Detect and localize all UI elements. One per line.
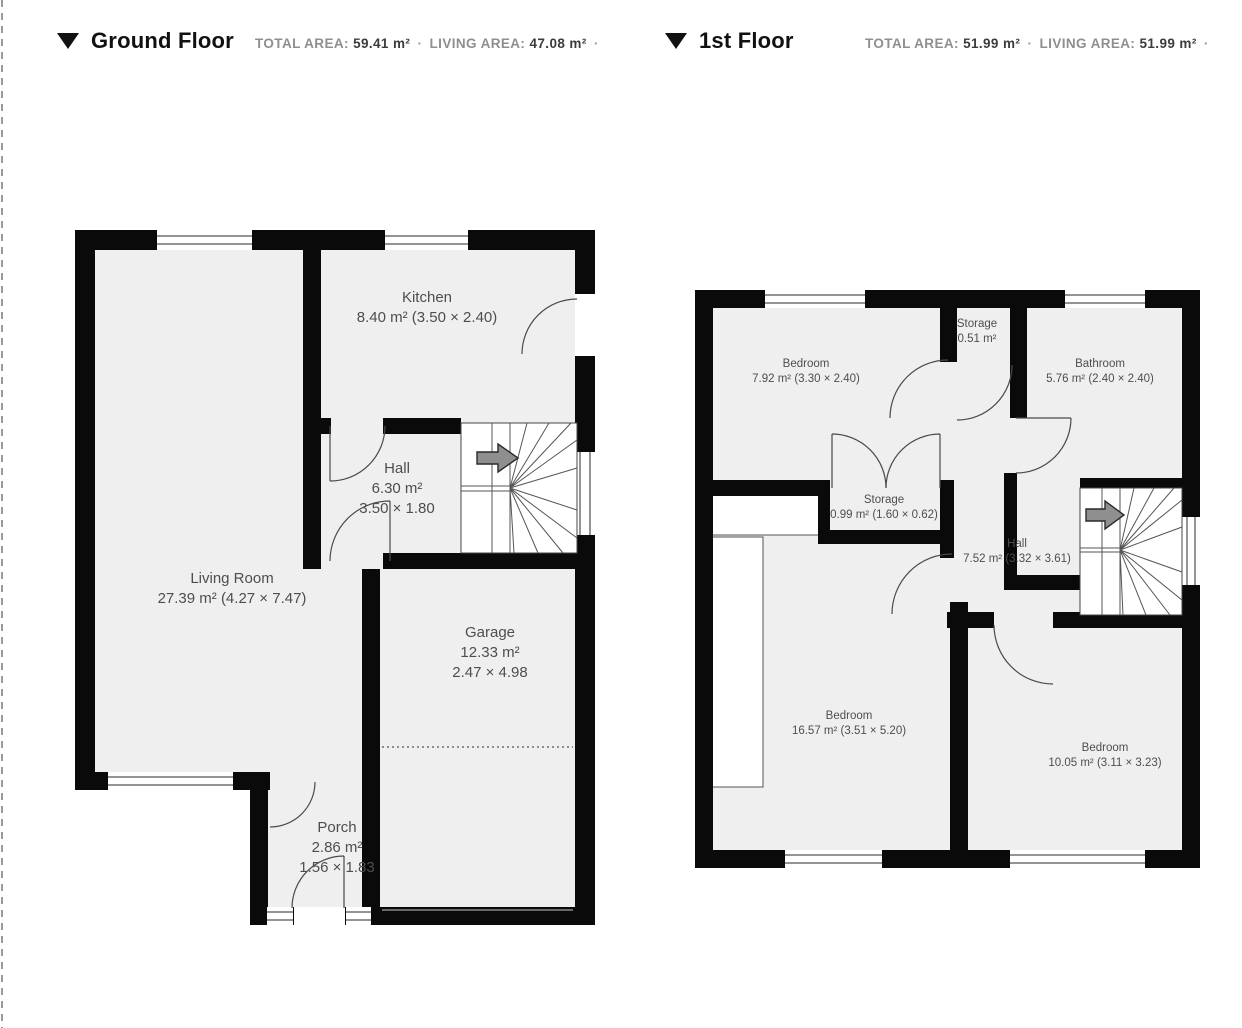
ground-floor-stats: TOTAL AREA: 59.41 m² · LIVING AREA: 47.0… — [255, 36, 602, 51]
room-label-storage-mid: Storage 0.99 m² (1.60 × 0.62) — [830, 493, 938, 523]
room-label-hall-ground: Hall 6.30 m² 3.50 × 1.80 — [359, 459, 434, 519]
room-label-storage-small: Storage 0.51 m² — [957, 317, 997, 347]
room-label-porch: Porch 2.86 m² 1.56 × 1.83 — [299, 818, 374, 878]
room-label-garage: Garage 12.33 m² 2.47 × 4.98 — [452, 623, 527, 683]
ground-floor-header[interactable]: Ground Floor — [57, 28, 234, 54]
total-area-value: 59.41 m² — [353, 36, 410, 51]
room-label-bedroom-left: Bedroom 16.57 m² (3.51 × 5.20) — [792, 709, 906, 739]
living-area-label: LIVING AREA: — [1040, 36, 1136, 51]
room-label-kitchen: Kitchen 8.40 m² (3.50 × 2.40) — [357, 288, 498, 328]
room-label-living-room: Living Room 27.39 m² (4.27 × 7.47) — [158, 569, 307, 609]
total-area-value: 51.99 m² — [963, 36, 1020, 51]
separator-dot: · — [1201, 36, 1212, 51]
triangle-down-icon[interactable] — [665, 33, 687, 49]
first-floor-header[interactable]: 1st Floor — [665, 28, 794, 54]
living-area-value: 51.99 m² — [1139, 36, 1196, 51]
first-floor-stairs — [1080, 488, 1182, 615]
total-area-label: TOTAL AREA: — [865, 36, 959, 51]
separator-dot: · — [591, 36, 602, 51]
room-label-bedroom-right: Bedroom 10.05 m² (3.11 × 3.23) — [1048, 741, 1161, 771]
ground-floor-stairs — [461, 423, 577, 553]
room-label-bathroom: Bathroom 5.76 m² (2.40 × 2.40) — [1046, 357, 1154, 387]
living-area-label: LIVING AREA: — [430, 36, 526, 51]
ground-floor-title[interactable]: Ground Floor — [91, 28, 234, 54]
separator-dot: · — [1024, 36, 1035, 51]
room-label-hall-first: Hall 7.52 m² (3.32 × 3.61) — [963, 537, 1071, 567]
room-label-bedroom-top: Bedroom 7.92 m² (3.30 × 2.40) — [752, 357, 860, 387]
living-area-value: 47.08 m² — [529, 36, 586, 51]
first-floor-title[interactable]: 1st Floor — [699, 28, 794, 54]
first-floor-stats: TOTAL AREA: 51.99 m² · LIVING AREA: 51.9… — [865, 36, 1212, 51]
separator-dot: · — [414, 36, 425, 51]
triangle-down-icon[interactable] — [57, 33, 79, 49]
total-area-label: TOTAL AREA: — [255, 36, 349, 51]
floor-plans-canvas — [0, 0, 1242, 1028]
